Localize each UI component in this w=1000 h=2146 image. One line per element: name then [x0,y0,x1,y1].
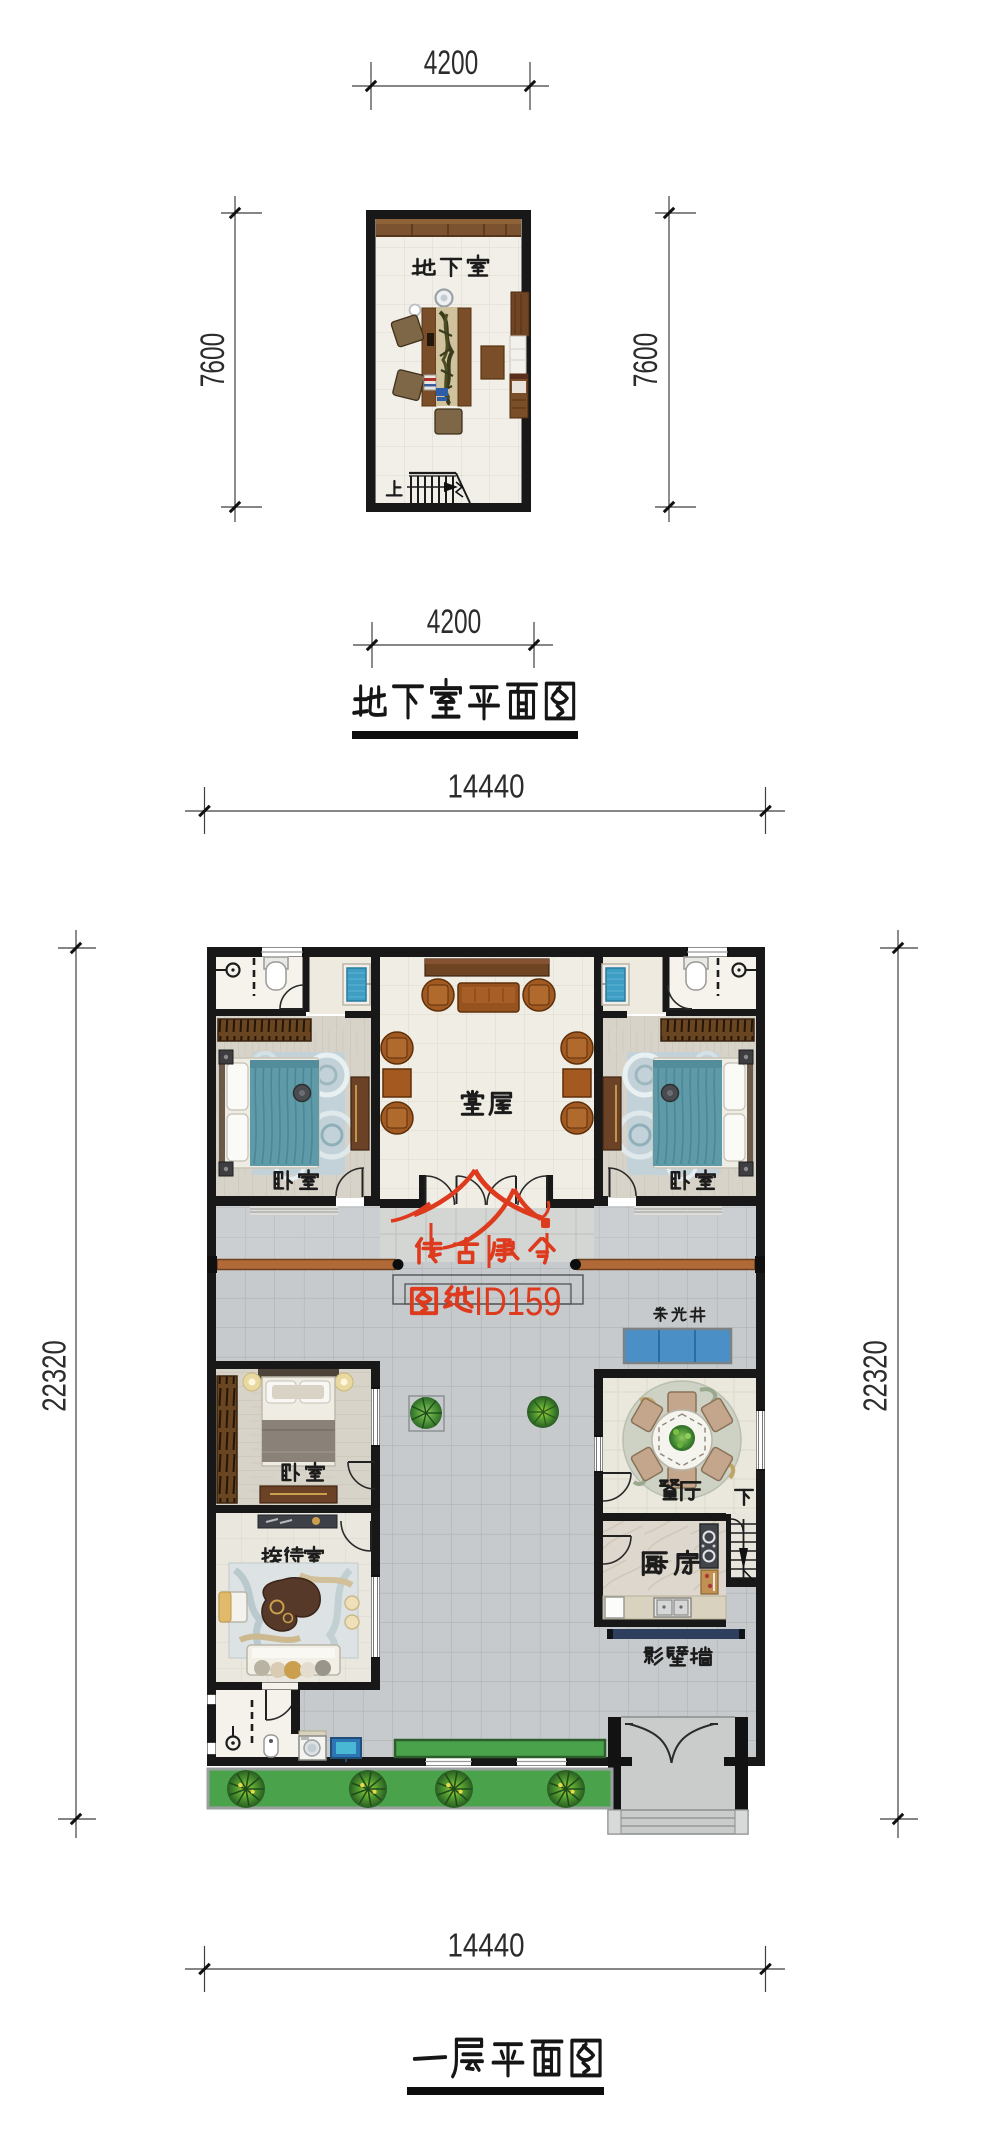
svg-text:ID159: ID159 [474,1279,562,1324]
svg-text:22320: 22320 [858,1340,895,1412]
svg-text:7600: 7600 [194,333,232,387]
svg-text:4200: 4200 [427,603,481,641]
svg-text:7600: 7600 [627,333,665,387]
svg-text:4200: 4200 [424,44,478,82]
svg-text:14440: 14440 [447,1927,524,1964]
svg-text:14440: 14440 [447,768,524,805]
svg-text:22320: 22320 [37,1340,74,1412]
